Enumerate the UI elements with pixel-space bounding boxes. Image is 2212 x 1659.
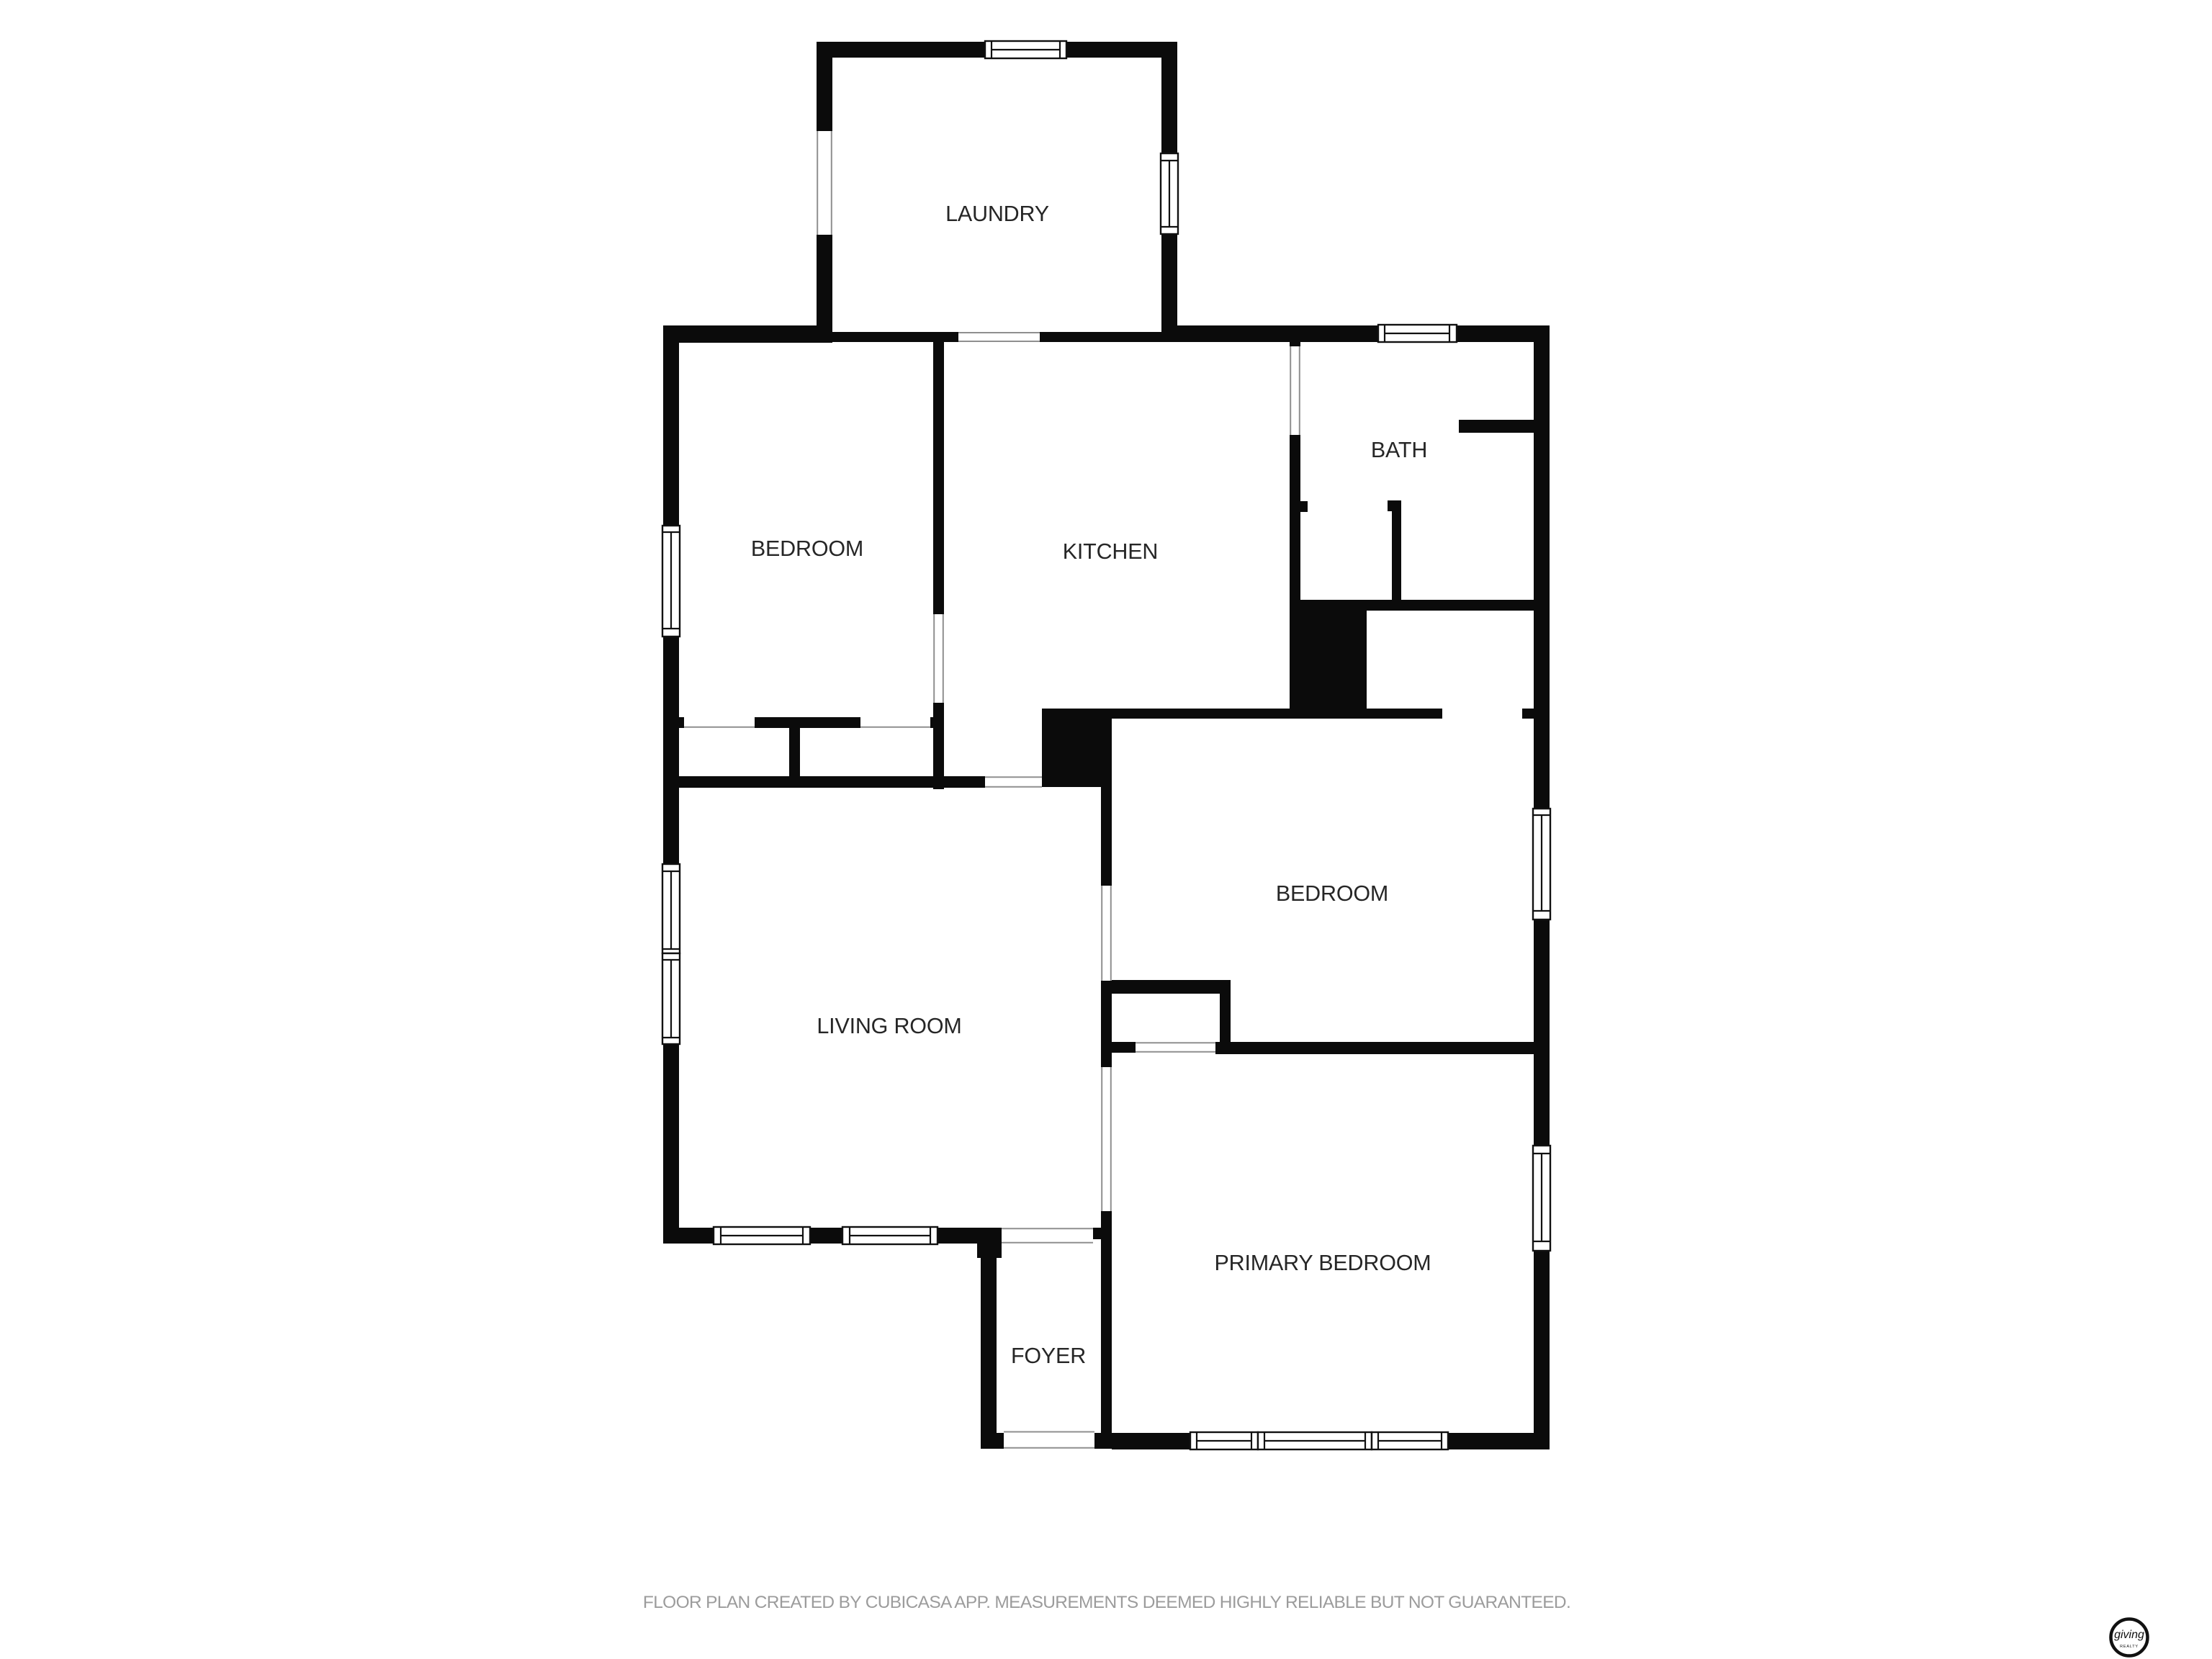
svg-text:PRIMARY BEDROOM: PRIMARY BEDROOM	[1215, 1251, 1431, 1275]
svg-text:LAUNDRY: LAUNDRY	[945, 202, 1049, 226]
svg-text:giving: giving	[2114, 1629, 2144, 1641]
svg-text:BEDROOM: BEDROOM	[1276, 881, 1388, 906]
svg-text:FLOOR PLAN CREATED BY CUBICASA: FLOOR PLAN CREATED BY CUBICASA APP. MEAS…	[643, 1593, 1570, 1612]
svg-text:REALTY: REALTY	[2120, 1645, 2139, 1649]
svg-text:BEDROOM: BEDROOM	[751, 536, 863, 561]
svg-text:BATH: BATH	[1371, 438, 1427, 462]
svg-text:LIVING ROOM: LIVING ROOM	[817, 1014, 961, 1038]
svg-text:FOYER: FOYER	[1011, 1344, 1086, 1368]
svg-text:KITCHEN: KITCHEN	[1063, 539, 1158, 564]
